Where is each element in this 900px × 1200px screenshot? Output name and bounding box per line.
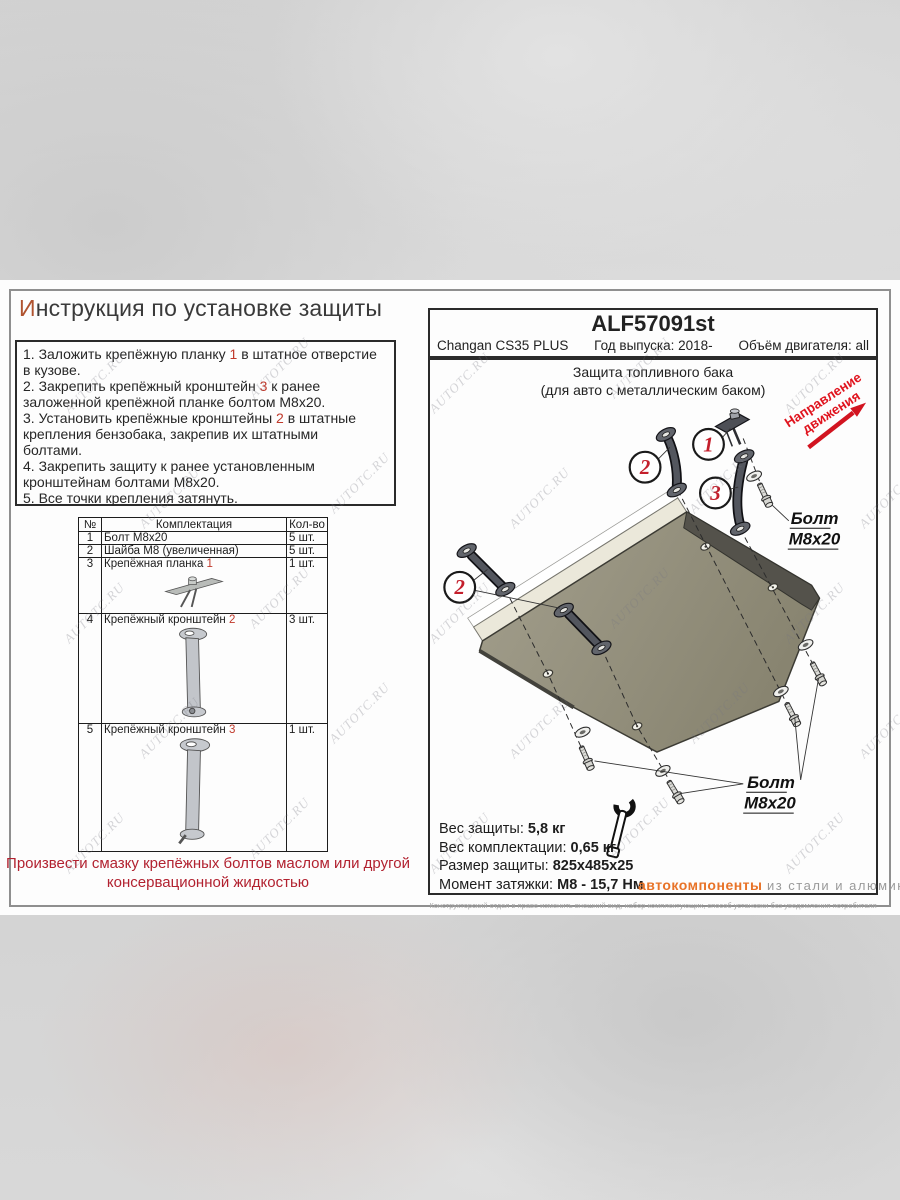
callout-3-number: 3 [709, 481, 720, 505]
instruction-line: 1. Заложить крепёжную планку 1 в штатное… [23, 346, 389, 362]
bolt-label-upper-word: Болт [791, 509, 839, 528]
callout-1: 1 [693, 429, 724, 460]
parts-table: №КомплектацияКол-во 1Болт М8х205 шт.2Шай… [78, 517, 328, 852]
instruction-line: болтами. [23, 442, 389, 458]
table-cell: Крепёжная планка 1 [102, 558, 287, 614]
parts-table-header-cell: Комплектация [102, 518, 287, 532]
instruction-line: крепления бензобака, закрепив их штатным… [23, 426, 389, 442]
diagram-box: Защита топливного бака (для авто с метал… [428, 358, 878, 895]
vehicle-model: Changan CS35 PLUS [437, 338, 568, 353]
instruction-line: 5. Все точки крепления затянуть. [23, 490, 389, 506]
callout-2-left-number: 2 [454, 575, 465, 599]
lubrication-note-line1: Произвести смазку крепёжных болтов масло… [6, 854, 410, 873]
instruction-line: заложенной крепёжной планке болтом М8х20… [23, 394, 389, 410]
brand-tagline: из стали и алюминия [767, 878, 900, 893]
protection-plate [468, 489, 820, 752]
assembly-diagram: 1 2 2 3 [430, 360, 876, 893]
spec-row: Размер защиты: 825х485х25 [439, 857, 644, 876]
instruction-sheet: Инструкция по установке защиты 1. Заложи… [0, 280, 900, 915]
lubrication-note-line2: консервационной жидкостью [6, 873, 410, 892]
table-cell: Крепёжный кронштейн 2 [102, 614, 287, 724]
bolt-label-upper: Болт М8х20 [788, 509, 841, 549]
instruction-line: в кузове. [23, 362, 389, 378]
table-cell: 1 шт. [287, 558, 328, 614]
instruction-line: 4. Закрепить защиту к ранее установленны… [23, 458, 389, 474]
table-cell: 1 [79, 532, 102, 545]
table-row: 5Крепёжный кронштейн 31 шт. [79, 724, 328, 852]
parts-table-header-cell: Кол-во [287, 518, 328, 532]
table-cell: 4 [79, 614, 102, 724]
engine-volume: Объём двигателя: all [739, 338, 869, 353]
background-bottom [0, 915, 900, 1200]
spec-row: Момент затяжки: М8 - 15,7 Нм [439, 876, 644, 895]
parts-table-header-cell: № [79, 518, 102, 532]
title-first-letter: И [19, 295, 36, 321]
bolt-label-lower: Болт М8х20 [743, 773, 796, 813]
spec-row: Вес комплектации: 0,65 кг [439, 839, 644, 858]
bolt-label-upper-size: М8х20 [789, 530, 841, 549]
fine-print: Конструкторский отдел в праве изменить в… [428, 901, 878, 910]
instruction-line: 2. Закрепить крепёжный кронштейн 3 к ран… [23, 378, 389, 394]
specs-block: Вес защиты: 5,8 кгВес комплектации: 0,65… [439, 820, 644, 894]
bracket3-part-icon [104, 736, 284, 851]
background-top [0, 0, 900, 280]
table-cell: 3 [79, 558, 102, 614]
vehicle-info-row: Changan CS35 PLUS Год выпуска: 2018- Объ… [430, 337, 876, 353]
table-row: 2Шайба М8 (увеличенная)5 шт. [79, 545, 328, 558]
table-row: 4Крепёжный кронштейн 23 шт. [79, 614, 328, 724]
brand-line: автокомпоненты из стали и алюминия [638, 877, 900, 895]
table-cell: Шайба М8 (увеличенная) [102, 545, 287, 558]
table-cell: 1 шт. [287, 724, 328, 852]
instruction-line: 3. Установить крепёжные кронштейны 2 в ш… [23, 410, 389, 426]
installation-steps-box: 1. Заложить крепёжную планку 1 в штатное… [15, 340, 396, 506]
table-cell: 2 [79, 545, 102, 558]
callout-2-upper: 2 [630, 452, 661, 483]
table-cell: 5 шт. [287, 545, 328, 558]
lubrication-note: Произвести смазку крепёжных болтов масло… [6, 854, 410, 892]
table-cell: Крепёжный кронштейн 3 [102, 724, 287, 852]
instruction-line: кронштейнам болтами М8х20. [23, 474, 389, 490]
bracket2-part-icon [104, 626, 284, 723]
callout-1-number: 1 [703, 432, 713, 456]
table-cell: 3 шт. [287, 614, 328, 724]
table-cell: 5 шт. [287, 532, 328, 545]
callout-3: 3 [700, 478, 731, 509]
product-header-box: ALF57091st Changan CS35 PLUS Год выпуска… [428, 308, 878, 358]
table-row: 3Крепёжная планка 11 шт. [79, 558, 328, 614]
bolt-label-lower-size: М8х20 [744, 794, 796, 813]
page-title: Инструкция по установке защиты [19, 295, 382, 322]
parts-table-header: №КомплектацияКол-во [79, 518, 328, 532]
plate-part-icon [104, 570, 284, 613]
brand-name: автокомпоненты [638, 877, 763, 893]
callout-2-upper-number: 2 [639, 455, 650, 479]
watermark-text: AUTOTC.RU [326, 679, 393, 746]
title-rest: нструкция по установке защиты [36, 295, 382, 321]
screenshot-stage: Инструкция по установке защиты 1. Заложи… [0, 0, 900, 1200]
table-cell: Болт М8х20 [102, 532, 287, 545]
bolt-label-lower-word: Болт [747, 773, 795, 792]
callout-2-left: 2 [444, 572, 475, 603]
part-number: ALF57091st [430, 311, 876, 337]
spec-row: Вес защиты: 5,8 кг [439, 820, 644, 839]
vehicle-year: Год выпуска: 2018- [594, 338, 713, 353]
direction-arrow: Направление движения [782, 370, 872, 448]
table-cell: 5 [79, 724, 102, 852]
table-row: 1Болт М8х205 шт. [79, 532, 328, 545]
